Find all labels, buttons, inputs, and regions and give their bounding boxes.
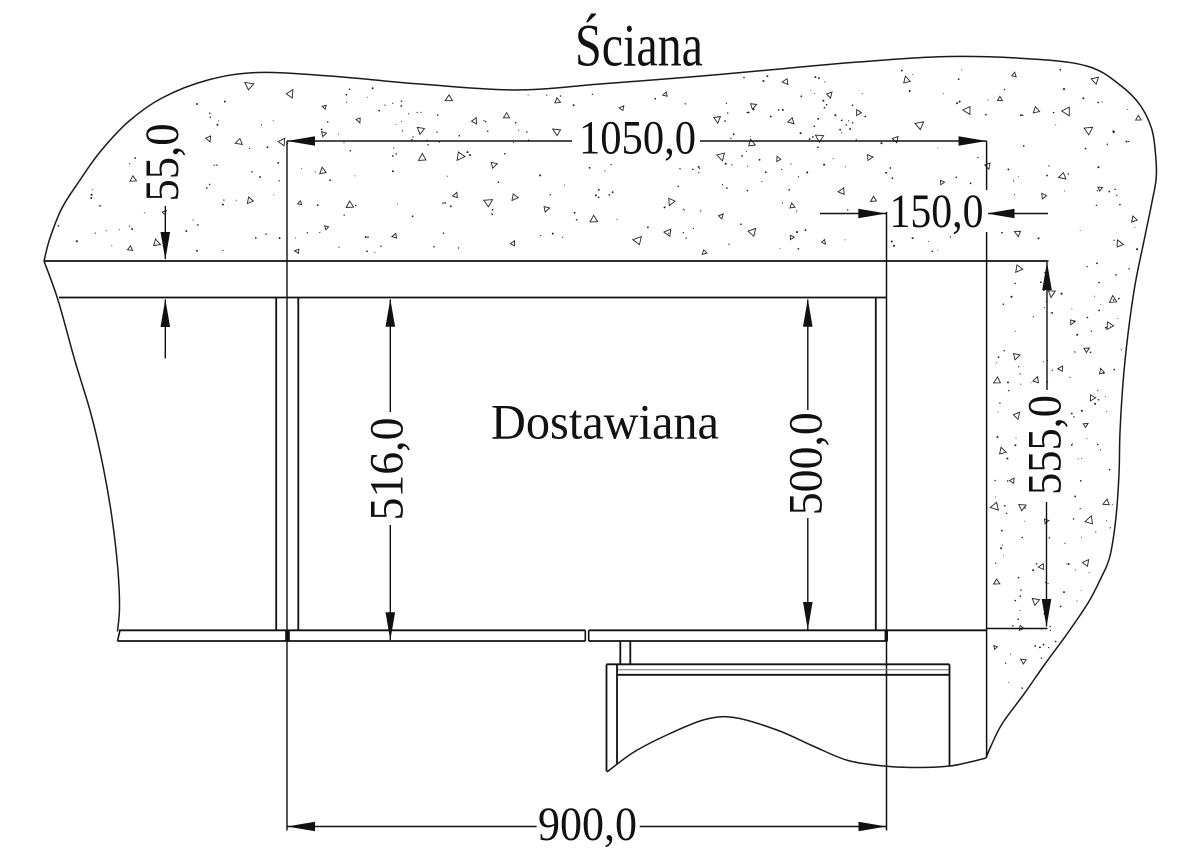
svg-text:Dostawiana: Dostawiana — [491, 394, 719, 450]
svg-text:150,0: 150,0 — [890, 185, 984, 238]
svg-text:55,0: 55,0 — [136, 124, 189, 202]
svg-text:516,0: 516,0 — [360, 418, 413, 521]
svg-text:900,0: 900,0 — [538, 798, 637, 851]
svg-text:555,0: 555,0 — [1019, 395, 1072, 495]
svg-text:Ściana: Ściana — [575, 13, 703, 79]
svg-text:1050,0: 1050,0 — [579, 112, 696, 165]
svg-text:500,0: 500,0 — [779, 412, 832, 515]
